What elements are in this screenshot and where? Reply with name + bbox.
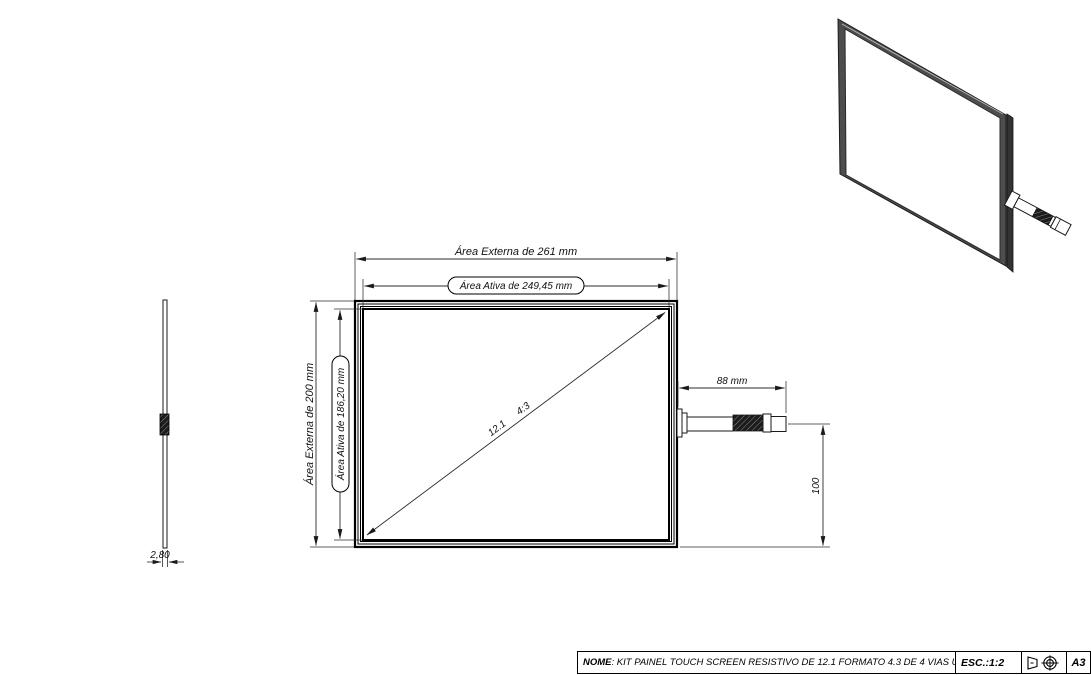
title-block-scale-cell: ESC.:1:2 — [955, 652, 1021, 673]
front-cable — [677, 409, 786, 437]
technical-drawing-svg: 2,80 12.1 4:3 — [0, 0, 1091, 675]
iso-view — [838, 19, 1072, 272]
title-block-name-cell: NOME: KIT PAINEL TOUCH SCREEN RESISTIVO … — [578, 652, 955, 673]
front-view: 12.1 4:3 — [303, 245, 830, 547]
title-block-sheet-cell: A3 — [1066, 652, 1090, 673]
scale-label: ESC.:1:2 — [961, 657, 1004, 669]
side-cable-section — [160, 414, 169, 435]
iso-cable — [1004, 191, 1072, 237]
cable-tab-inner — [682, 413, 687, 433]
first-angle-projection-icon — [1027, 655, 1061, 671]
name-value: : KIT PAINEL TOUCH SCREEN RESISTIVO DE 1… — [612, 657, 956, 668]
dim-active-height-label: Área Ativa de 186,20 mm — [334, 368, 347, 481]
title-block: NOME: KIT PAINEL TOUCH SCREEN RESISTIVO … — [577, 651, 1091, 674]
dim-outer-height-label: Área Externa de 200 mm — [303, 363, 316, 486]
sheet-size-label: A3 — [1071, 657, 1085, 669]
dim-thickness-label: 2,80 — [149, 550, 170, 561]
cable-connector-end — [771, 417, 786, 432]
dim-cable-length-label: 88 mm — [717, 376, 748, 387]
title-block-projection-cell — [1021, 652, 1066, 673]
name-label: NOME — [583, 657, 612, 668]
dim-active-width-label: Área Ativa de 249,45 mm — [459, 279, 572, 292]
iso-panel-screen — [845, 29, 1000, 260]
dim-cable-offset-label: 100 — [811, 477, 822, 494]
cable-tab-outer — [677, 409, 682, 437]
iso-cable-hatch — [1032, 208, 1053, 225]
side-view: 2,80 — [147, 300, 184, 567]
drawing-canvas: 2,80 12.1 4:3 — [0, 0, 1091, 675]
cable-hatch-section — [733, 415, 763, 431]
cable-connector-base — [763, 414, 771, 432]
dim-outer-width-label: Área Externa de 261 mm — [454, 245, 577, 258]
